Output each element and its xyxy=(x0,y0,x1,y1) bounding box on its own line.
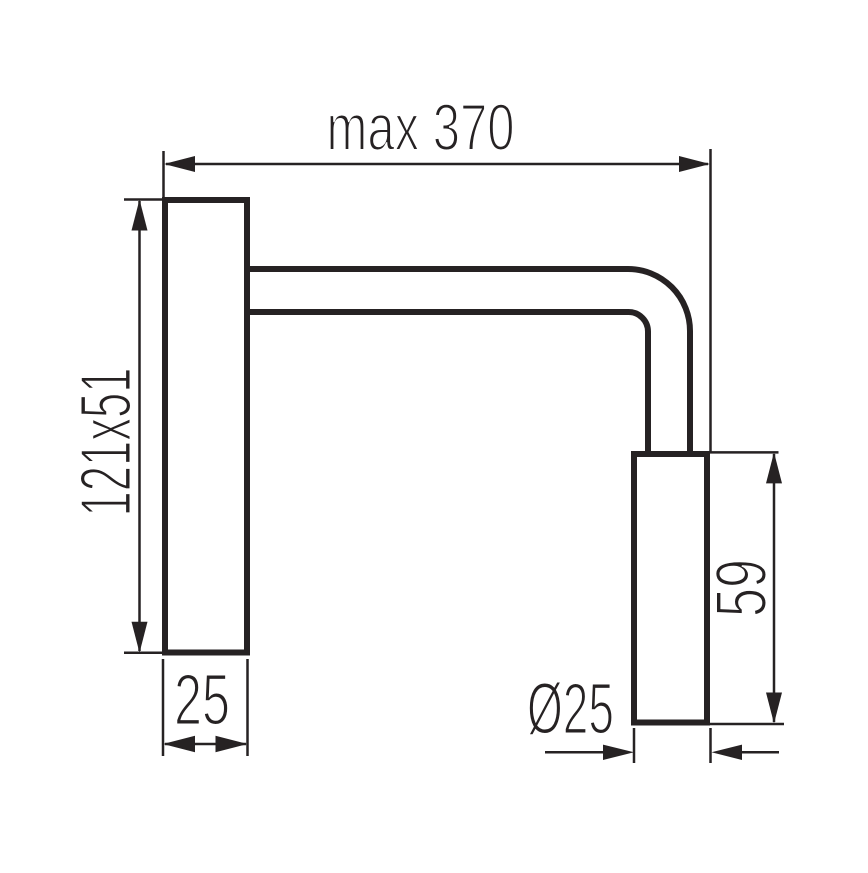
svg-text:121x51: 121x51 xyxy=(67,368,147,517)
svg-text:max 370: max 370 xyxy=(327,90,515,164)
svg-text:25: 25 xyxy=(174,661,230,741)
svg-text:59: 59 xyxy=(702,559,782,617)
svg-text:Ø25: Ø25 xyxy=(527,670,614,750)
